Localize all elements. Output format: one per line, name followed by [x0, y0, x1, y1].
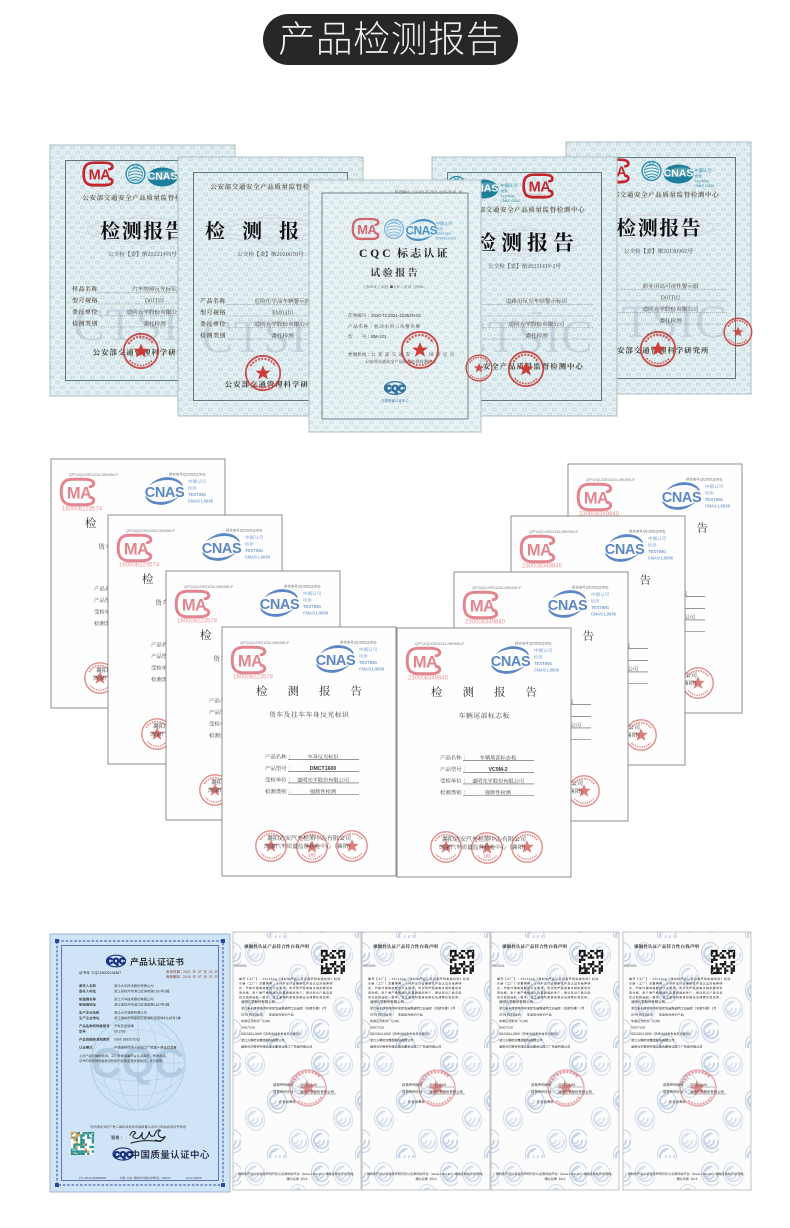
svg-text:M60200214: M60200214 — [525, 193, 547, 198]
svg-text:T/F:+86(10)83886666: T/F:+86(10)83886666 — [79, 1176, 107, 1180]
svg-text:D01T02: D01T02 — [114, 1030, 126, 1034]
svg-text:CQC: CQC — [359, 248, 394, 260]
svg-text:2020-TC2021-42352N-01: 2020-TC2021-42352N-01 — [371, 313, 422, 318]
svg-text:2019002345: 2019002345 — [356, 237, 376, 241]
svg-text:TESTING: TESTING — [436, 232, 451, 236]
svg-text:CNAS L2310: CNAS L2310 — [436, 237, 456, 241]
svg-text:CQC15002134567: CQC15002134567 — [92, 971, 121, 975]
svg-text:No.9 100070: No.9 100070 — [186, 1176, 202, 1180]
svg-text:2019002345: 2019002345 — [89, 183, 108, 187]
svg-text:GB/T 18833-2012: GB/T 18833-2012 — [114, 1038, 140, 1042]
svg-text:CNAS L2310: CNAS L2310 — [695, 184, 715, 188]
svg-text:TESTING: TESTING — [501, 195, 516, 199]
svg-text:TESTING: TESTING — [695, 180, 710, 184]
svg-text:CNAS L2310: CNAS L2310 — [501, 199, 521, 203]
svg-text:BM-101: BM-101 — [371, 334, 387, 339]
